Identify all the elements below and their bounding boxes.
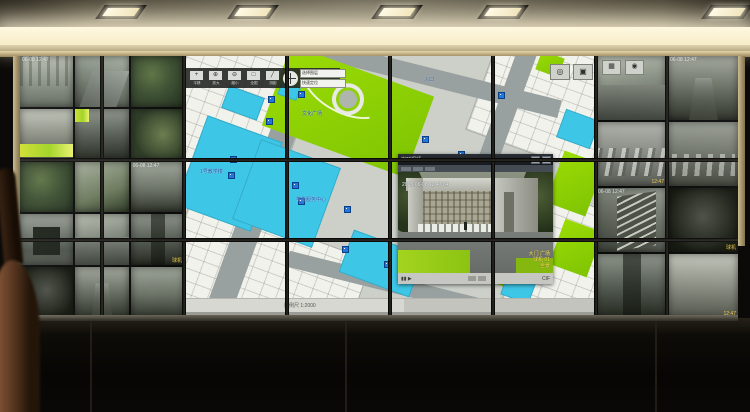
tool-icon: + [190, 71, 203, 80]
recessed-light-fixture [95, 5, 147, 19]
tool-icon: ╱ [266, 71, 279, 80]
camera-timestamp-overlay: 06-08 12:47 [670, 57, 697, 63]
camera-marker[interactable] [422, 136, 429, 143]
camera-timestamp-overlay: 06-08 12:47 [133, 163, 160, 169]
camera-feed[interactable] [131, 267, 184, 318]
popup-control-bar[interactable]: ▮▮ ▶ CIF [398, 273, 553, 284]
tool-label: 放大 [212, 80, 219, 85]
camera-marker[interactable] [292, 182, 299, 189]
wall-seam [345, 318, 347, 412]
tool-icon: ⊖ [228, 71, 241, 80]
right-monitor-toolbar: ▦◉ [602, 60, 644, 75]
map-readout[interactable]: 快速定位 [300, 79, 346, 88]
camera-feed[interactable] [668, 122, 738, 186]
gate-fence-shape [418, 224, 494, 232]
ceiling [0, 0, 750, 56]
tool-label: 缩小 [231, 80, 238, 85]
map-label: 文化广场 [302, 110, 322, 117]
camera-marker[interactable] [228, 172, 235, 179]
recessed-light-fixture [371, 5, 423, 19]
video-info-line: 全景 [529, 263, 550, 269]
camera-timestamp-overlay: 06-08 12:47 [598, 189, 625, 195]
map-label: 入口 [424, 76, 434, 83]
monitor-tool-icon[interactable]: ◉ [625, 60, 644, 75]
camera-feed[interactable] [131, 109, 184, 160]
camera-feed[interactable]: 06-08 12:47 [20, 56, 73, 107]
map-tool-buttons: + 平移 ⊕ 放大 ⊖ 缩小 □ 全图 ╱ [188, 71, 281, 86]
wall-side-trim [738, 56, 745, 246]
camera-feed[interactable]: 06-08 12:47 [131, 162, 184, 213]
monitor-bezel [491, 56, 495, 318]
map-label: 学生服务中心 [296, 196, 326, 203]
recessed-light-fixture [477, 5, 529, 19]
console-wall [0, 318, 750, 412]
camera-marker[interactable] [498, 92, 505, 99]
camera-feed[interactable] [20, 162, 73, 213]
status-bar-segment [404, 299, 596, 313]
gate-lawn-shape [398, 250, 470, 273]
map-toolbar: + 平移 ⊕ 放大 ⊖ 缩小 □ 全图 ╱ [186, 68, 340, 88]
camera-feed[interactable] [596, 254, 666, 318]
map-mode-button[interactable]: ◎ [550, 64, 570, 80]
playback-controls[interactable]: ▮▮ ▶ [401, 276, 412, 282]
camera-marker[interactable] [344, 206, 351, 213]
popup-video-frame[interactable]: 2015-06-08 12:47:04 大门 广场球机 01全景 [398, 172, 553, 273]
camera-feed[interactable]: 2015-06-08 [20, 109, 73, 160]
tool-label: 平移 [193, 80, 200, 85]
control-bar-segments [468, 276, 486, 281]
wall-seam [655, 318, 657, 412]
camera-feed[interactable]: 12:47 [596, 122, 666, 186]
map-readout[interactable]: 选择图层 [300, 69, 346, 78]
pedestrian-shape [464, 222, 467, 230]
popup-toolbar [398, 165, 553, 172]
camera-feed[interactable]: 球机 [668, 188, 738, 252]
monitor-bezel [594, 56, 598, 318]
monitor-tool-icon[interactable]: ▦ [602, 60, 621, 75]
control-room-photo: 06-08 12:47 2015-06-08 [0, 0, 750, 412]
camera-marker[interactable] [342, 246, 349, 253]
video-info-overlay: 大门 广场球机 01全景 [529, 251, 550, 269]
wall-seam [90, 318, 92, 412]
monitor-bezel [20, 158, 738, 162]
live-video-popup[interactable]: 实时视频 □ × 2015-06-08 12 [398, 154, 553, 284]
map-tool-button[interactable]: ╱ 测距 [264, 71, 281, 86]
camera-name-overlay: 12:47 [651, 179, 664, 185]
map-tool-button[interactable]: + 平移 [188, 71, 205, 86]
map-readouts: 选择图层快速定位 [300, 69, 346, 88]
camera-feed[interactable] [131, 56, 184, 107]
map-tool-button[interactable]: ⊕ 放大 [207, 71, 224, 86]
camera-marker[interactable] [266, 118, 273, 125]
tool-icon: ⊕ [209, 71, 222, 80]
map-tool-button[interactable]: ⊖ 缩小 [226, 71, 243, 86]
cove-light-band [0, 27, 750, 45]
tool-icon: □ [247, 71, 260, 80]
camera-marker[interactable] [298, 91, 305, 98]
monitor-bezel [388, 56, 392, 318]
monitor-bezel [20, 238, 738, 242]
stream-type-label: CIF [542, 276, 550, 282]
monitor-bezel [182, 56, 186, 318]
recessed-light-fixture [701, 5, 750, 19]
map-mode-button[interactable]: ▣ [573, 64, 593, 80]
camera-feed[interactable]: 06-08 12:47 [668, 56, 738, 120]
tool-label: 全图 [250, 80, 257, 85]
monitor-bezel [100, 56, 104, 318]
map-label: 1号教学楼 [200, 168, 223, 175]
map-tool-button[interactable]: □ 全图 [245, 71, 262, 86]
camera-feed[interactable]: 12:47 [668, 254, 738, 318]
map-topright-buttons: ◎▣ [550, 64, 593, 80]
monitor-bezel [665, 56, 669, 318]
tool-label: 测距 [269, 80, 276, 85]
video-timestamp: 2015-06-08 12:47:04 [402, 182, 448, 188]
camera-name-overlay: 球机 [172, 257, 182, 264]
camera-feed[interactable]: 06-08 12:47 [596, 188, 666, 252]
camera-name-overlay: 球机 [726, 244, 736, 251]
camera-timestamp-overlay: 06-08 12:47 [22, 57, 49, 63]
monitor-bezel [285, 56, 289, 318]
wall-bottom-trim [20, 315, 738, 321]
video-wall: 06-08 12:47 2015-06-08 [20, 56, 738, 318]
camera-marker[interactable] [268, 96, 275, 103]
recessed-light-fixture [227, 5, 279, 19]
